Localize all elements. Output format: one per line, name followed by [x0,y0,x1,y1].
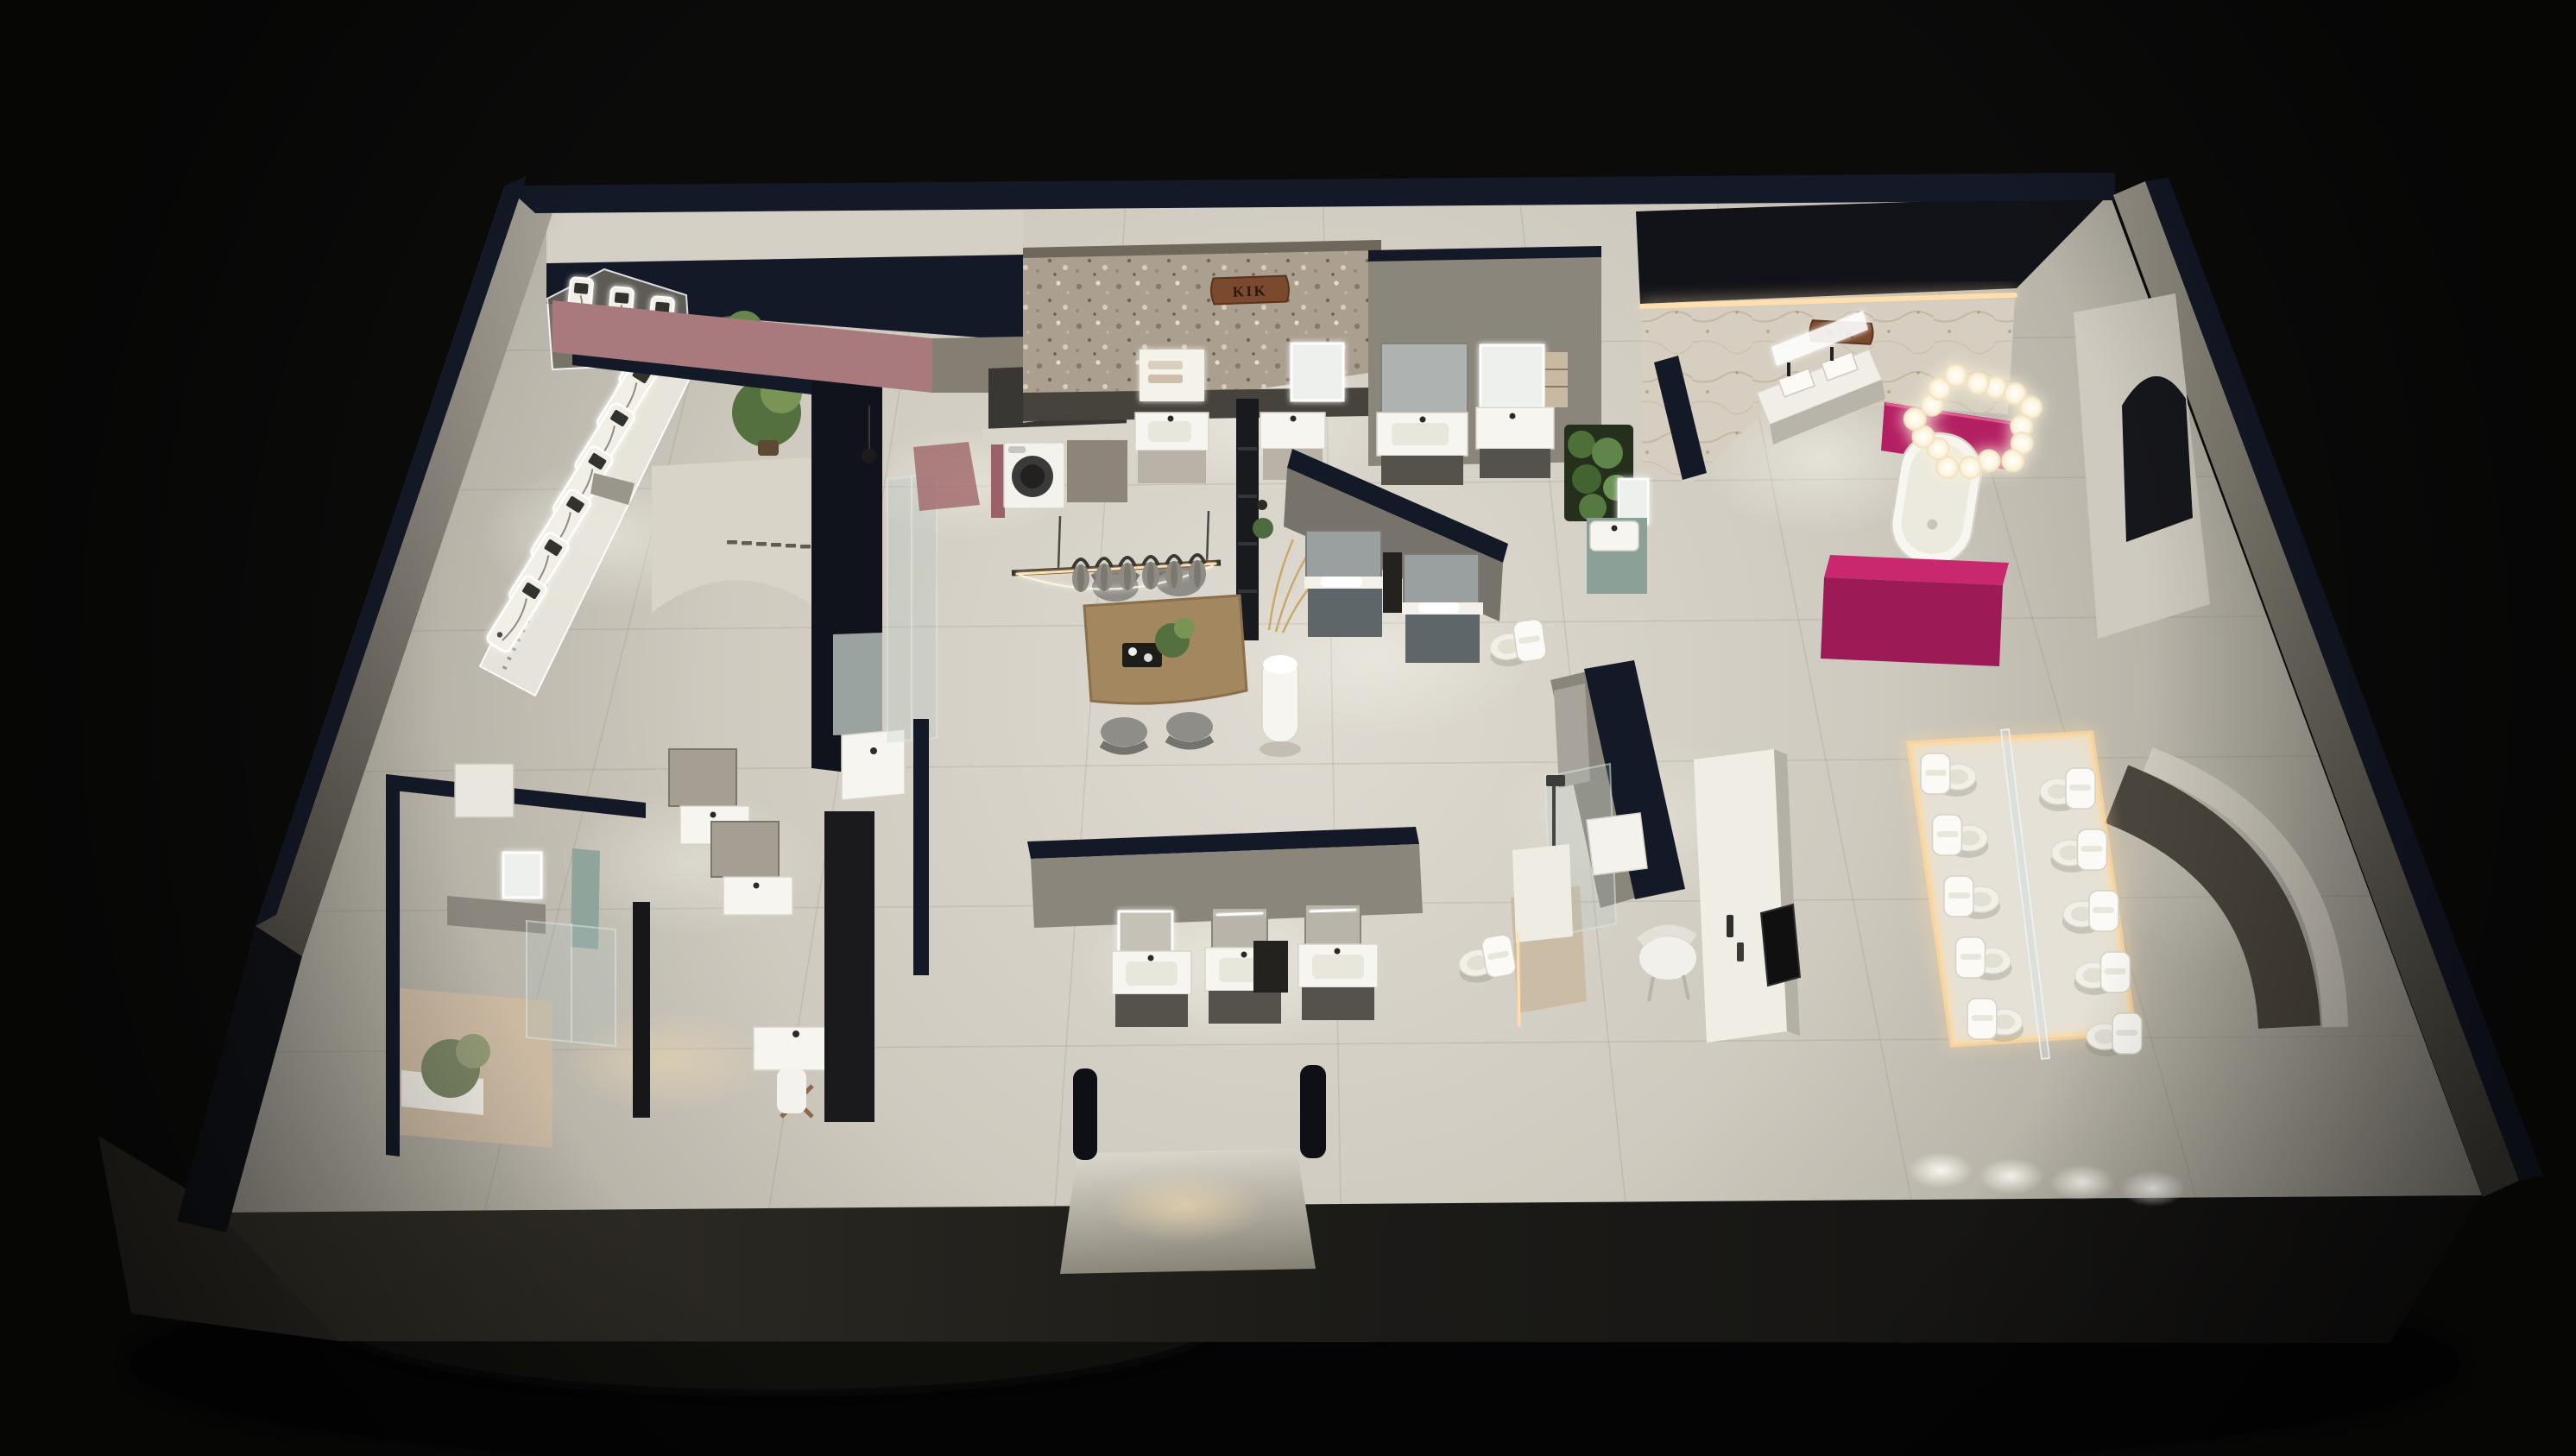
bubble-chandelier-8 [1959,456,1982,479]
laundry-cabinet [1067,440,1127,502]
info-wall-micro-text-4 [771,543,781,547]
mauve-cabinet [991,444,1005,518]
arch-opening [2122,376,2193,542]
towel [777,1068,806,1113]
entrance-light-pool [1102,1170,1266,1243]
wall-washer-lights-4 [2120,1170,2186,1207]
suite-wall-west [386,774,400,1157]
island-unit-left [1304,531,1386,637]
mauve-floor-patch [913,442,980,511]
render-viewport: KIK [0,0,2576,1456]
wall-washer-lights-2 [1979,1158,2044,1194]
info-wall-micro-text-1 [727,540,737,545]
divider-wall-a [633,902,650,1118]
vanity-unit-3 [1377,344,1468,485]
tall-cabinet [1512,844,1573,942]
entrance-pillar-right [1300,1065,1326,1158]
side-stool [1587,813,1647,875]
wall-washer-lights-3 [2049,1164,2115,1201]
vanity-unit-1 [1135,350,1209,483]
table-tray [1122,643,1162,667]
dining-chair-4 [1166,712,1213,746]
brand-sign-1: KIK [1210,275,1289,304]
remote-control-2 [1737,942,1744,961]
island-unit-right [1402,554,1483,663]
bubble-chandelier-16 [1967,372,1990,395]
island-cubby [1383,552,1402,613]
lit-mirror [503,853,541,898]
bubble-chandelier-15 [1944,364,1967,388]
remote-control-1 [1727,915,1733,937]
corridor-mirror [833,633,882,735]
row-cubby-shelf [1253,941,1288,993]
showroom-render: KIK [0,0,2576,1456]
rain-shower-head [1546,775,1565,786]
entrance-pillar-left [1073,1068,1097,1160]
divider-wall-c [913,719,929,975]
info-wall-micro-text-3 [756,542,767,546]
info-wall-micro-text-5 [786,544,796,548]
demo-screen [1761,904,1800,986]
corridor-faucet [870,747,877,754]
pendant-lamp [862,448,877,463]
info-wall-micro-text-2 [742,541,752,545]
divider-wall-b [824,811,874,1122]
cabinet-led [1518,934,1519,1025]
desk-column [1694,749,1787,1043]
upper-cabinet [455,764,514,817]
magenta-counter-front [1821,577,2003,666]
brand-sign-1-text: KIK [1232,282,1267,299]
washing-machine [1004,443,1064,508]
dining-chair-3 [1101,717,1147,751]
bubble-chandelier-6 [2001,450,2024,473]
wall-washer-lights-1 [1908,1152,1973,1188]
info-wall-micro-text-6 [800,545,811,549]
